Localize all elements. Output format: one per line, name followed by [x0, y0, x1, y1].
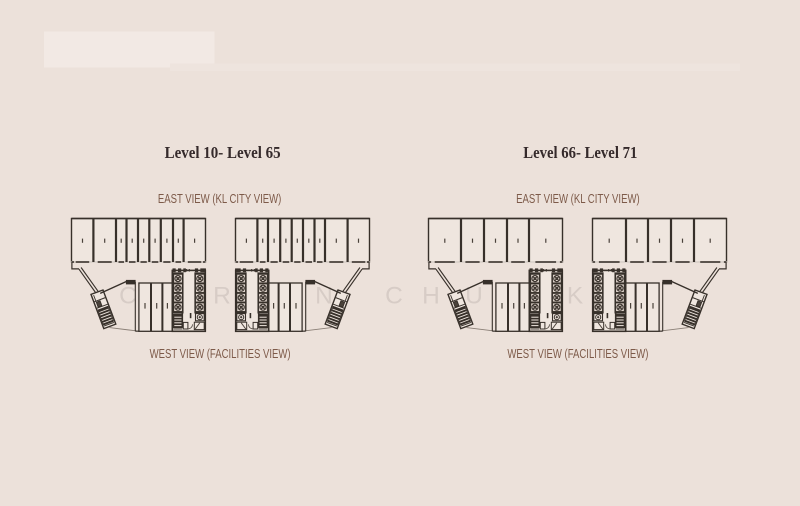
- svg-text:EAST VIEW (KL CITY VIEW): EAST VIEW (KL CITY VIEW): [158, 192, 282, 206]
- svg-text:U: U: [465, 283, 483, 310]
- svg-text:Level 66- Level 71: Level 66- Level 71: [523, 143, 637, 162]
- svg-text:K: K: [567, 283, 584, 310]
- svg-text:N: N: [315, 283, 333, 310]
- svg-text:Level 10- Level 65: Level 10- Level 65: [165, 143, 281, 162]
- svg-text:H: H: [422, 283, 440, 310]
- svg-text:WEST VIEW (FACILITIES VIEW): WEST VIEW (FACILITIES VIEW): [150, 347, 291, 361]
- svg-text:C: C: [119, 283, 137, 310]
- svg-text:EAST VIEW (KL CITY VIEW): EAST VIEW (KL CITY VIEW): [516, 192, 640, 206]
- svg-text:C: C: [385, 283, 403, 310]
- svg-text:R: R: [213, 283, 231, 310]
- svg-text:WEST VIEW (FACILITIES VIEW): WEST VIEW (FACILITIES VIEW): [507, 347, 648, 361]
